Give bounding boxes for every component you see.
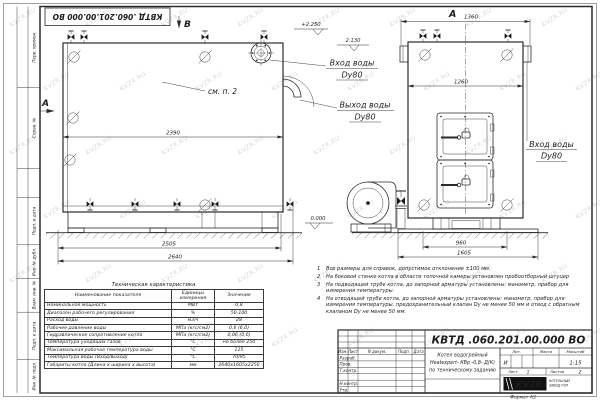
doc-title: Котел водогрейный [437, 353, 487, 359]
doc-number: КВТД .060.201.00.000 ВО [432, 335, 586, 347]
blower [347, 182, 407, 232]
tb-row: Т.контр. [340, 368, 358, 373]
dim-text: 1260 [454, 80, 468, 86]
position-mark-icon [501, 49, 514, 62]
doc-title: по техническому заданию [429, 369, 496, 374]
ground-line [46, 233, 302, 239]
table-row: Температура уходящих газов°Сне более 250 [45, 339, 264, 346]
margin-label: Взам. инв. № [32, 280, 37, 309]
valve-icon [261, 31, 268, 43]
dim-text: 2640 [168, 255, 182, 261]
mass-header: Масса [540, 349, 553, 354]
drain-valve-icon [87, 198, 94, 210]
company-logo: KVZR КОТЕЛЬНЫЙ ЗАВОД РЭП [504, 377, 571, 391]
tech-table-title: Техническая характеристика [44, 282, 263, 288]
blower-valve-icon [395, 191, 407, 229]
company-name: ЗАВОД РЭП [549, 384, 569, 388]
position-mark-icon [199, 199, 212, 212]
tb-col: Дата [412, 349, 424, 354]
elevation-text: 0.000 [311, 216, 327, 222]
position-mark-icon [501, 199, 514, 212]
company-abbr: KVZR [516, 381, 542, 391]
list-item: 4 На отводящей трубе котла, до запорной … [315, 296, 591, 315]
view-title: А [448, 9, 456, 20]
margin-label: Подп. и дата [32, 321, 37, 350]
ground-line [352, 233, 548, 239]
table-row: Гидравлическое сопротивление котлаМПа (к… [45, 332, 264, 339]
dim-text: 960 [456, 241, 467, 247]
dim-text: 1360 [464, 15, 478, 21]
margin-label: Инв. № дубл. [32, 248, 37, 277]
side-dimensions: 2390 2505 2640 [58, 131, 293, 265]
position-mark-icon [199, 51, 212, 64]
tech-table-header-row: Наименование показателя Единицы измерени… [45, 290, 264, 303]
elevation-marks: +2.250 2.130 0.000 [294, 22, 369, 229]
elevation-text: +2.250 [301, 22, 321, 28]
position-mark-icon [419, 49, 432, 62]
scale-header: Масштаб [566, 349, 585, 354]
doc-title: Heatexpert- КВр -0,8- Д(К) [430, 360, 495, 366]
position-mark-icon [67, 112, 80, 125]
sheet-value: 1 [527, 369, 530, 375]
elevation-text: 2.130 [346, 38, 362, 44]
table-row: Диапазон рабочего регулирования%50-100 [45, 310, 264, 317]
lit-header: Лит. [511, 349, 521, 354]
margin-label: Инв. № подл. [32, 362, 37, 391]
outlet-nozzle [283, 76, 314, 107]
scale-value: 1:15 [569, 361, 582, 367]
valve-icon [68, 31, 75, 43]
table-row: Расход водым3/ч28 [45, 317, 264, 324]
inlet-flange-icon [248, 40, 274, 66]
position-mark-icon [64, 154, 77, 167]
margin-label: Справ. № [32, 117, 37, 138]
svg-text:Вход воды: Вход воды [330, 59, 375, 68]
title-block: Изм. Лист N докум. Подп. Дата Разраб. Пр… [338, 330, 592, 393]
tb-row: Разраб. [340, 355, 356, 360]
drain-valve-icon [132, 198, 139, 210]
front-dimensions: А 1360 1260 960 1605 [398, 9, 538, 260]
drain-valve-icon [212, 198, 219, 210]
tb-col: N докум. [368, 349, 387, 354]
table-row: Габариты котла (Длина х ширина х высота)… [45, 362, 264, 369]
svg-text:Выход воды: Выход воды [340, 101, 391, 110]
valve-icon [420, 30, 427, 42]
dim-text: 2505 [162, 242, 176, 248]
table-row: Максимальная рабочая температура воды°С1… [45, 347, 264, 354]
tech-table: Наименование показателя Единицы измерени… [44, 289, 264, 369]
tb-col: Подп. [398, 349, 410, 354]
svg-text:Dy80: Dy80 [541, 152, 562, 161]
view-marker-a: А [40, 99, 54, 111]
format-label: Формат А3 [510, 395, 536, 400]
svg-text:А: А [41, 99, 49, 109]
valve-icon [434, 30, 441, 42]
tb-col: Изм. [338, 349, 347, 354]
tb-row: Утв. [340, 387, 349, 392]
table-row: Номинальная мощностьМВт0,8 [45, 302, 264, 309]
tech-table-header: Единицы измерения [172, 290, 215, 303]
svg-text:см. п. 2: см. п. 2 [208, 87, 237, 96]
company-name: КОТЕЛЬНЫЙ [549, 378, 570, 383]
valve-icon [81, 31, 88, 43]
tech-table-header: Значение [215, 290, 264, 303]
side-view: 2390 2505 2640 +2.250 2.130 0.000 [40, 16, 394, 265]
list-item: 1 Все размеры для справок, допустимое от… [315, 266, 591, 272]
dim-text: 2390 [166, 131, 180, 137]
sheet-label: Лист [507, 369, 518, 374]
svg-text:В: В [184, 20, 191, 30]
table-row: Температура воды (Вход/выход)°С70/95 [45, 354, 264, 361]
position-mark-icon [418, 199, 431, 212]
see-note-callout: см. п. 2 [162, 82, 237, 96]
lit-value: И [503, 361, 507, 367]
list-item: 2 На боковой стенке котла в области топо… [315, 274, 591, 280]
top-stamp-number: КВТД .060.201.00.000 ВО [52, 12, 162, 21]
drawing-sheet: KVZR.RUKVZR.RUKVZR.RUKVZR.RUKVZR.RUKVZR.… [0, 0, 600, 400]
outlet-label: Выход воды Dy80 [300, 100, 394, 122]
sheets-label: Листов [549, 369, 565, 374]
margin-column: Перв. примен. Справ. № Подп. и дата Инв.… [17, 7, 40, 394]
notes-list: 1 Все размеры для справок, допустимое от… [315, 266, 591, 317]
svg-text:Вход воды: Вход воды [529, 140, 574, 149]
position-mark-icon [68, 51, 81, 64]
margin-label: Подп. и дата [32, 206, 37, 235]
tb-row: Пров. [340, 362, 352, 367]
dim-text: 1605 [457, 251, 471, 257]
tb-col: Лист [347, 349, 359, 354]
tech-table-header: Наименование показателя [45, 290, 172, 303]
top-stamp: КВТД .060.201.00.000 ВО [45, 8, 170, 26]
tech-characteristics: Техническая характеристика Наименование … [44, 282, 263, 369]
valve-icon [202, 31, 209, 43]
svg-text:Dy80: Dy80 [341, 71, 362, 80]
svg-text:Dy80: Dy80 [354, 113, 375, 122]
view-marker-b: В [179, 16, 191, 30]
inlet-label: Вход воды Dy80 [270, 59, 378, 81]
drain-valve-icon [287, 198, 294, 210]
margin-label: Перв. примен. [32, 31, 37, 62]
front-view: А 1360 1260 960 1605 Вход воды [352, 9, 577, 260]
valve-icon [505, 30, 512, 42]
tb-row: Н.контр. [340, 381, 359, 386]
drain-valve-icon [174, 198, 181, 210]
list-item: 3 На подводящей трубе котла, до запорной… [315, 282, 591, 295]
sheets-value: 2 [579, 369, 582, 375]
front-inlet-label: Вход воды Dy80 [526, 62, 577, 162]
table-row: Рабочее давление водыМПа (кгс/см2)0,6 (6… [45, 325, 264, 332]
